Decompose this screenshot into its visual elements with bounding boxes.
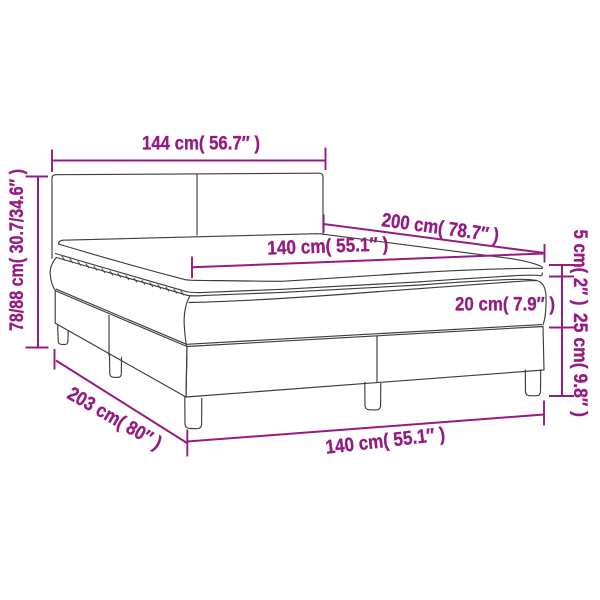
svg-text:144 cm( 56.7″ ): 144 cm( 56.7″ ) bbox=[142, 133, 260, 155]
svg-text:78/88 cm( 30.7/34.6″ ): 78/88 cm( 30.7/34.6″ ) bbox=[6, 169, 28, 331]
svg-text:20 cm( 7.9″ ): 20 cm( 7.9″ ) bbox=[455, 294, 555, 316]
svg-text:5 cm( 2″ ): 5 cm( 2″ ) bbox=[569, 230, 591, 306]
svg-text:140 cm( 55.1″ ): 140 cm( 55.1″ ) bbox=[267, 233, 389, 259]
svg-text:25 cm( 9.8″ ): 25 cm( 9.8″ ) bbox=[569, 313, 591, 417]
